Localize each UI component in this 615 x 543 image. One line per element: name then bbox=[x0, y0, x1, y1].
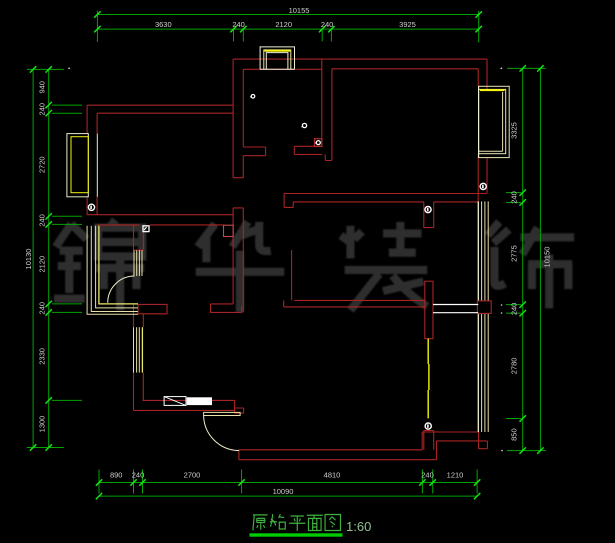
svg-text:850: 850 bbox=[510, 428, 519, 441]
svg-text:240: 240 bbox=[37, 302, 46, 315]
svg-text:10150: 10150 bbox=[543, 247, 552, 268]
svg-text:1:60: 1:60 bbox=[346, 519, 371, 534]
svg-text:240: 240 bbox=[37, 103, 46, 116]
svg-text:10090: 10090 bbox=[273, 487, 294, 496]
svg-text:2120: 2120 bbox=[275, 20, 292, 29]
svg-text:1210: 1210 bbox=[447, 471, 464, 480]
svg-text:240: 240 bbox=[421, 471, 434, 480]
svg-text:240: 240 bbox=[510, 303, 519, 316]
svg-text:3925: 3925 bbox=[399, 20, 416, 29]
svg-text:2120: 2120 bbox=[37, 256, 46, 273]
svg-text:2330: 2330 bbox=[37, 348, 46, 365]
svg-text:3325: 3325 bbox=[510, 122, 519, 139]
svg-text:890: 890 bbox=[110, 471, 123, 480]
svg-text:10155: 10155 bbox=[289, 6, 310, 15]
svg-text:240: 240 bbox=[510, 191, 519, 204]
svg-text:240: 240 bbox=[132, 471, 145, 480]
svg-text:2780: 2780 bbox=[510, 358, 519, 375]
svg-text:2700: 2700 bbox=[184, 471, 201, 480]
svg-text:940: 940 bbox=[37, 81, 46, 94]
svg-text:1300: 1300 bbox=[37, 416, 46, 433]
svg-text:2720: 2720 bbox=[37, 156, 46, 173]
svg-text:240: 240 bbox=[232, 20, 245, 29]
svg-text:3630: 3630 bbox=[155, 20, 172, 29]
svg-text:10130: 10130 bbox=[24, 249, 33, 270]
svg-text:240: 240 bbox=[321, 20, 334, 29]
svg-text:240: 240 bbox=[37, 214, 46, 227]
svg-text:2775: 2775 bbox=[510, 245, 519, 262]
svg-text:4810: 4810 bbox=[324, 471, 341, 480]
